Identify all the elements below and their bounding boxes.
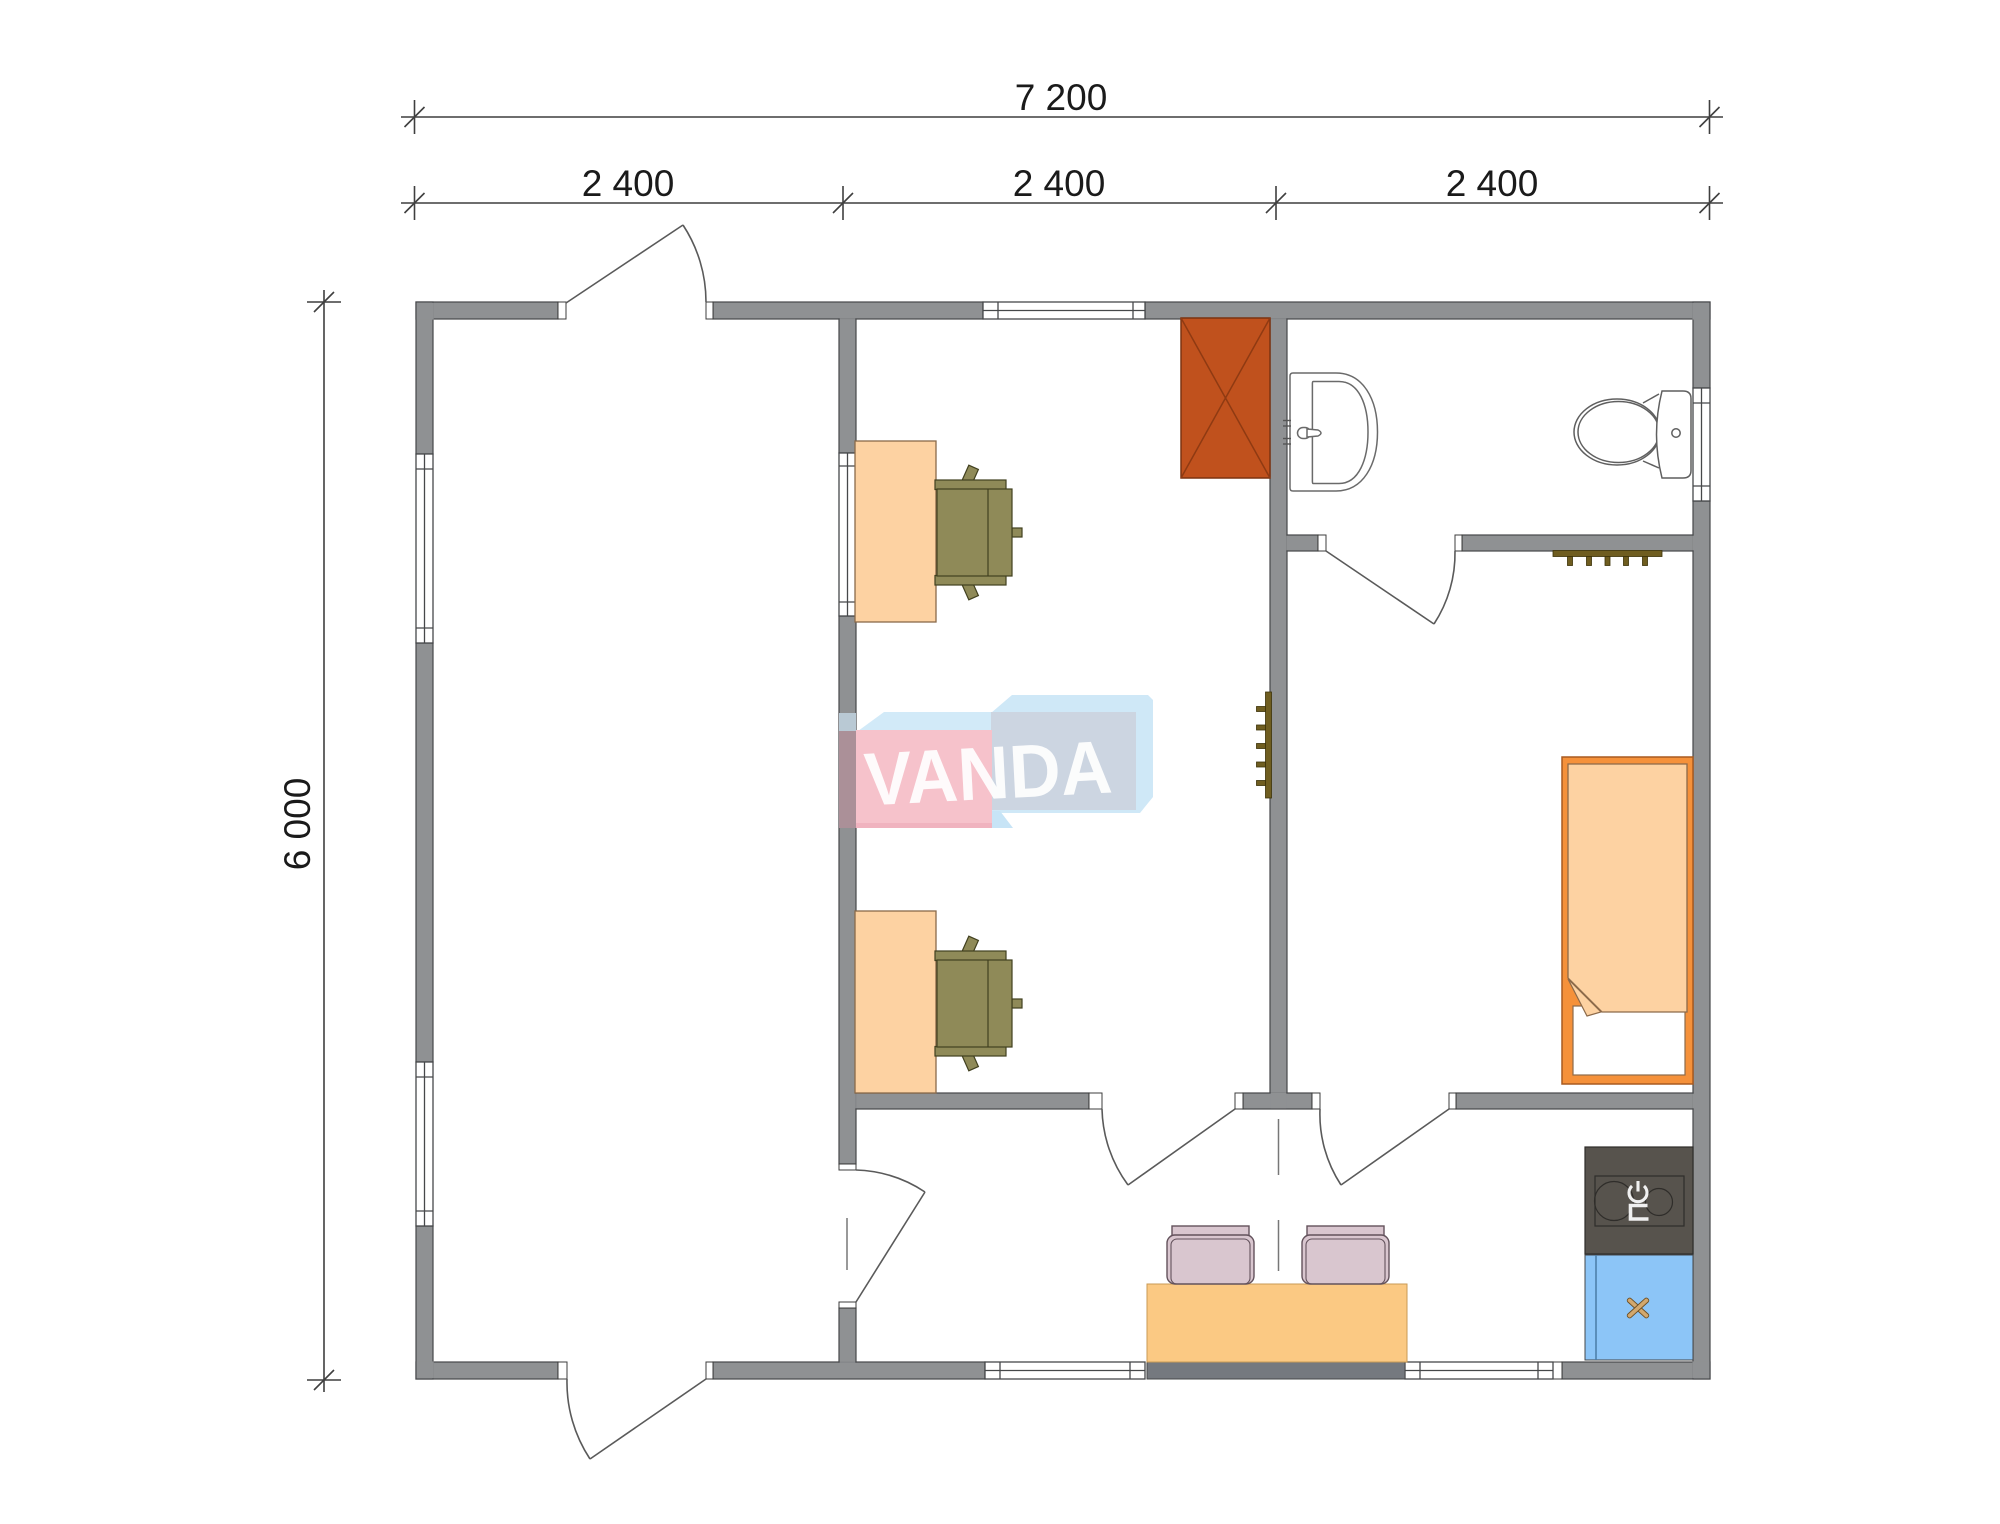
svg-text:2 400: 2 400 bbox=[1446, 163, 1539, 204]
svg-text:2 400: 2 400 bbox=[1013, 163, 1106, 204]
svg-text:6 000: 6 000 bbox=[277, 778, 318, 871]
svg-text:2 400: 2 400 bbox=[582, 163, 675, 204]
svg-text:7 200: 7 200 bbox=[1015, 77, 1108, 118]
svg-text:VANDA: VANDA bbox=[862, 725, 1114, 822]
